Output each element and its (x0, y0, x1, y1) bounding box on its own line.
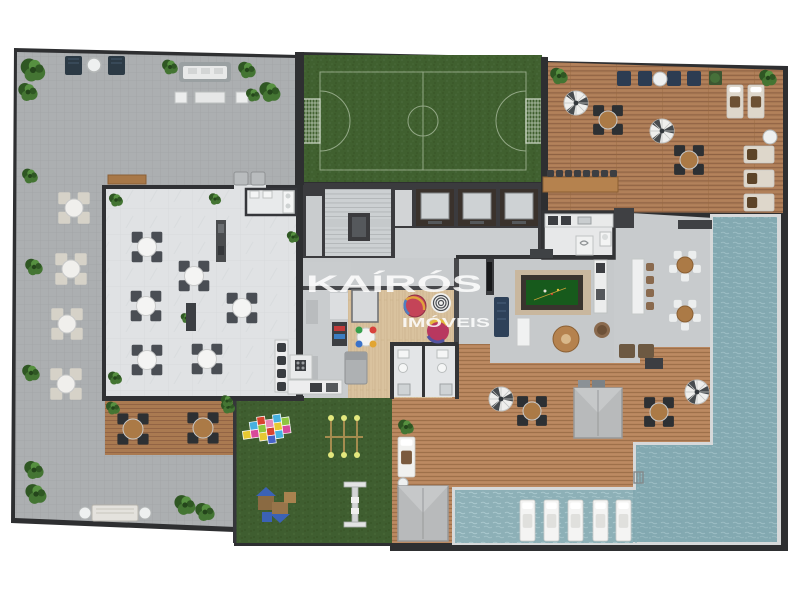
svg-text:KAÍRÓS: KAÍRÓS (306, 270, 482, 298)
svg-text:IMÓVEIS: IMÓVEIS (402, 315, 491, 330)
